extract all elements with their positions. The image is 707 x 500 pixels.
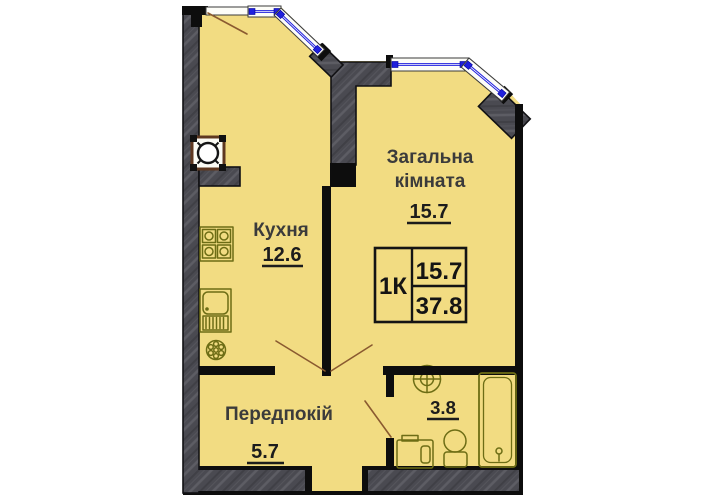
balcony-door (206, 7, 248, 15)
hallway-area: 5.7 (251, 441, 279, 463)
floor-plan: 1К 15.7 37.8 Загальна кімната 15.7 Кухня… (0, 0, 707, 500)
vent-shaft-icon (190, 135, 226, 171)
bath-door-stub-upper (386, 374, 394, 397)
entrance-opening (312, 466, 362, 491)
floor-plan-canvas: 1К 15.7 37.8 Загальна кімната 15.7 Кухня… (0, 0, 707, 500)
bath-door-stub-lower (386, 438, 394, 468)
left-exterior-wall (183, 7, 199, 493)
column-end-cap (330, 163, 356, 187)
living-room-area: 15.7 (410, 201, 449, 223)
bottom-right-wall (368, 470, 519, 491)
bathroom-area: 3.8 (430, 397, 456, 418)
bottom-left-wall (186, 470, 305, 491)
total-area-value: 37.8 (416, 293, 463, 320)
living-area-value: 15.7 (416, 258, 463, 285)
living-window-top (391, 58, 469, 71)
living-room-label-line1: Загальна (387, 147, 474, 168)
kitchen-area: 12.6 (263, 244, 302, 266)
living-room-label-line2: кімната (395, 171, 466, 192)
kitchen-label: Кухня (253, 220, 309, 241)
top-left-corner-knob (191, 13, 202, 27)
apartment-type-label: 1К (379, 273, 407, 300)
center-partition-wall (322, 186, 331, 376)
kitchen-hall-wall (199, 366, 275, 375)
hallway-label: Передпокій (225, 404, 333, 425)
